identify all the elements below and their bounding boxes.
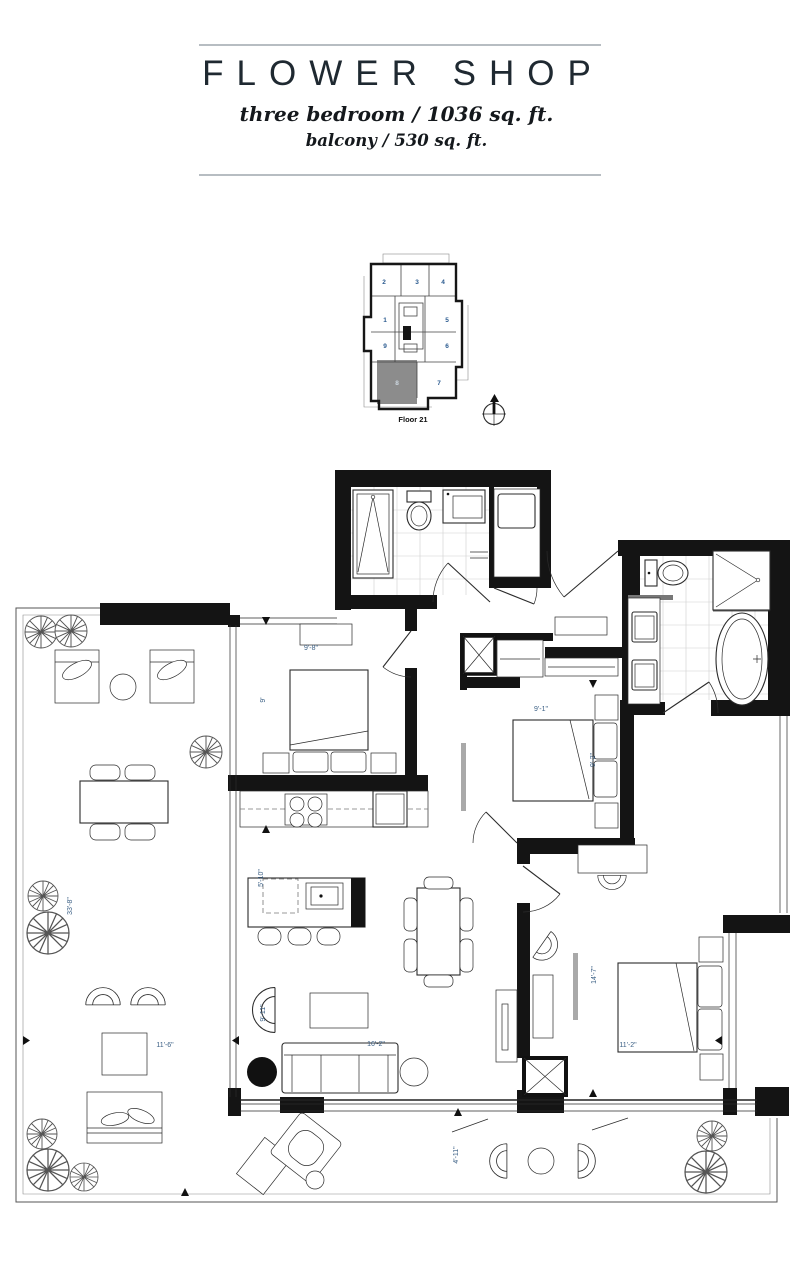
dim-balcony-depth: 4'-11" xyxy=(453,1146,460,1164)
nightstand xyxy=(700,1054,723,1080)
bar-stool xyxy=(288,928,311,945)
keyplan-unit-3: 3 xyxy=(415,279,419,286)
bathroom1-door xyxy=(433,563,490,602)
master-bathroom xyxy=(628,551,770,705)
dim-living-width: 16'-2" xyxy=(367,1041,385,1048)
wall-mirror xyxy=(461,743,466,811)
foyer-closet xyxy=(497,640,543,677)
balcony-chair xyxy=(490,1144,507,1179)
side-table-round xyxy=(400,1058,428,1086)
dim-living-depth: 9'-11" xyxy=(260,1004,267,1022)
fridge xyxy=(373,791,407,827)
vanity-sink xyxy=(443,490,485,523)
toilet xyxy=(645,560,688,586)
nightstand xyxy=(595,695,618,720)
outdoor-sofa xyxy=(87,1092,162,1143)
dim-balcony-width: 11'-6" xyxy=(156,1042,174,1049)
keyplan-unit-1: 1 xyxy=(383,317,387,324)
keyplan-unit-9: 9 xyxy=(383,343,387,350)
dim-master-width: 11'-2" xyxy=(619,1042,637,1049)
towel-bar xyxy=(470,552,488,558)
accent-chair xyxy=(533,931,564,966)
foyer-bench xyxy=(555,617,607,635)
small-round-table xyxy=(306,1171,324,1189)
wall-mirror xyxy=(573,953,578,1020)
bedroom-2 xyxy=(263,624,396,773)
balcony-door-swing-marks xyxy=(452,1118,628,1132)
master-bathroom-door xyxy=(663,682,718,713)
plant-icon xyxy=(190,736,222,768)
bar-stool xyxy=(317,928,340,945)
desk-chair xyxy=(598,875,627,889)
kitchen-island xyxy=(248,878,365,927)
plant-icon xyxy=(697,1121,727,1151)
building-key-plan: 1 2 3 4 5 6 7 8 9 Floor 21 xyxy=(364,254,468,424)
dim-master-depth: 14'-7" xyxy=(591,966,598,984)
bathroom-1 xyxy=(353,490,488,578)
plant-icon xyxy=(70,1163,98,1191)
toilet xyxy=(407,491,431,530)
bedroom3-door xyxy=(473,812,517,843)
plant-icon xyxy=(25,616,57,648)
keyplan-elevator-core xyxy=(403,326,411,340)
tv-console xyxy=(496,990,517,1062)
dining-chair xyxy=(424,975,453,987)
double-vanity xyxy=(628,598,660,704)
plant-icon xyxy=(27,912,69,954)
kitchen xyxy=(240,791,428,945)
shower-stall xyxy=(353,490,393,578)
west-window-wall xyxy=(230,625,236,1097)
entry-door xyxy=(547,551,618,597)
dining-chair xyxy=(424,877,453,889)
plant-icon xyxy=(27,1119,57,1149)
keyplan-unit-8: 8 xyxy=(395,380,399,387)
keyplan-unit-6: 6 xyxy=(445,343,449,350)
keyplan-floor-label: Floor 21 xyxy=(398,415,427,424)
dining-chair xyxy=(404,898,417,931)
master-bedroom xyxy=(524,845,723,1095)
balcony-chair xyxy=(578,1144,595,1179)
laundry-door xyxy=(494,588,537,604)
master-east-window xyxy=(729,933,736,1088)
floorplan-drawing: 1 2 3 4 5 6 7 8 9 Floor 21 xyxy=(0,0,793,1283)
keyplan-unit-2: 2 xyxy=(382,279,386,286)
nightstand xyxy=(371,753,396,773)
desk xyxy=(578,845,647,873)
closet-shaft xyxy=(524,1058,566,1095)
floorplan-page: FLOWER SHOP three bedroom / 1036 sq. ft.… xyxy=(0,0,793,1283)
keyplan-unit-7: 7 xyxy=(437,380,441,387)
keyplan-unit-4: 4 xyxy=(441,279,445,286)
dim-balcony-length: 33'-8" xyxy=(67,897,74,915)
plant-icon xyxy=(55,615,87,647)
plant-icon xyxy=(27,1149,69,1191)
bed xyxy=(618,963,722,1052)
shower-stall xyxy=(713,551,770,610)
plant-icon xyxy=(685,1151,727,1193)
dim-bedroom2-depth: 9' xyxy=(260,697,267,702)
balcony-chair xyxy=(131,988,166,1005)
nightstand xyxy=(699,937,723,962)
bedroom2-window xyxy=(240,618,337,624)
side-table-black xyxy=(247,1057,277,1087)
east-window-upper xyxy=(780,716,787,913)
nightstand xyxy=(595,803,618,828)
round-side-table xyxy=(528,1148,554,1174)
outdoor-dining-set xyxy=(80,765,168,840)
bed xyxy=(513,720,617,801)
bed xyxy=(290,670,368,772)
dining-table xyxy=(417,888,460,975)
dining-chair xyxy=(404,939,417,972)
keyplan-roof-tab xyxy=(383,254,449,263)
nightstand xyxy=(263,753,289,773)
dining-area xyxy=(404,877,473,987)
keyplan-unit-5: 5 xyxy=(445,317,449,324)
coffee-table xyxy=(310,993,368,1028)
balcony-chair xyxy=(86,988,121,1005)
dresser xyxy=(300,624,352,645)
plant-icon xyxy=(28,881,58,911)
laundry-closet xyxy=(494,489,540,577)
dim-bedroom3-width: 9'-1" xyxy=(534,706,548,713)
dim-island-length: 5'-10" xyxy=(258,869,265,887)
angled-lounge-set xyxy=(236,1112,342,1195)
dining-chair xyxy=(460,939,473,972)
bar-stool xyxy=(258,928,281,945)
square-table xyxy=(102,1033,147,1075)
dresser xyxy=(533,975,553,1038)
lounge-chairs xyxy=(55,650,194,703)
shaft xyxy=(463,636,495,674)
cooktop xyxy=(285,794,327,827)
sofa xyxy=(282,1043,398,1093)
compass-north-icon xyxy=(482,394,506,426)
dim-bedroom2-width: 9'-8" xyxy=(304,645,318,652)
round-side-table xyxy=(110,674,136,700)
dim-bedroom3-depth: 9'-2" xyxy=(590,753,597,767)
dining-chair xyxy=(460,898,473,931)
